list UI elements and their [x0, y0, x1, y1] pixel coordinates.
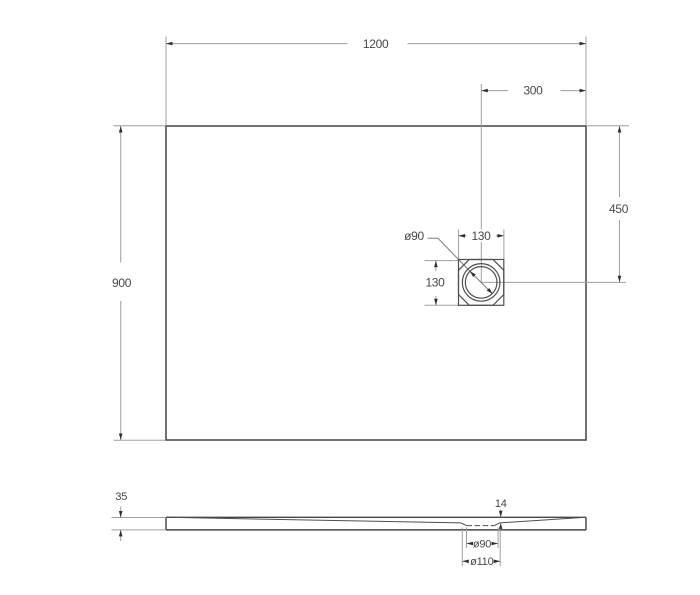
svg-text:130: 130	[425, 276, 445, 290]
svg-text:35: 35	[115, 491, 127, 503]
svg-text:1200: 1200	[363, 37, 389, 51]
svg-text:450: 450	[609, 202, 629, 216]
svg-text:ø90: ø90	[473, 538, 491, 550]
svg-text:130: 130	[471, 229, 491, 243]
svg-text:ø90: ø90	[404, 229, 424, 243]
svg-text:14: 14	[495, 498, 507, 510]
svg-text:300: 300	[523, 84, 543, 98]
svg-text:900: 900	[112, 276, 132, 290]
svg-text:ø110: ø110	[470, 556, 494, 568]
